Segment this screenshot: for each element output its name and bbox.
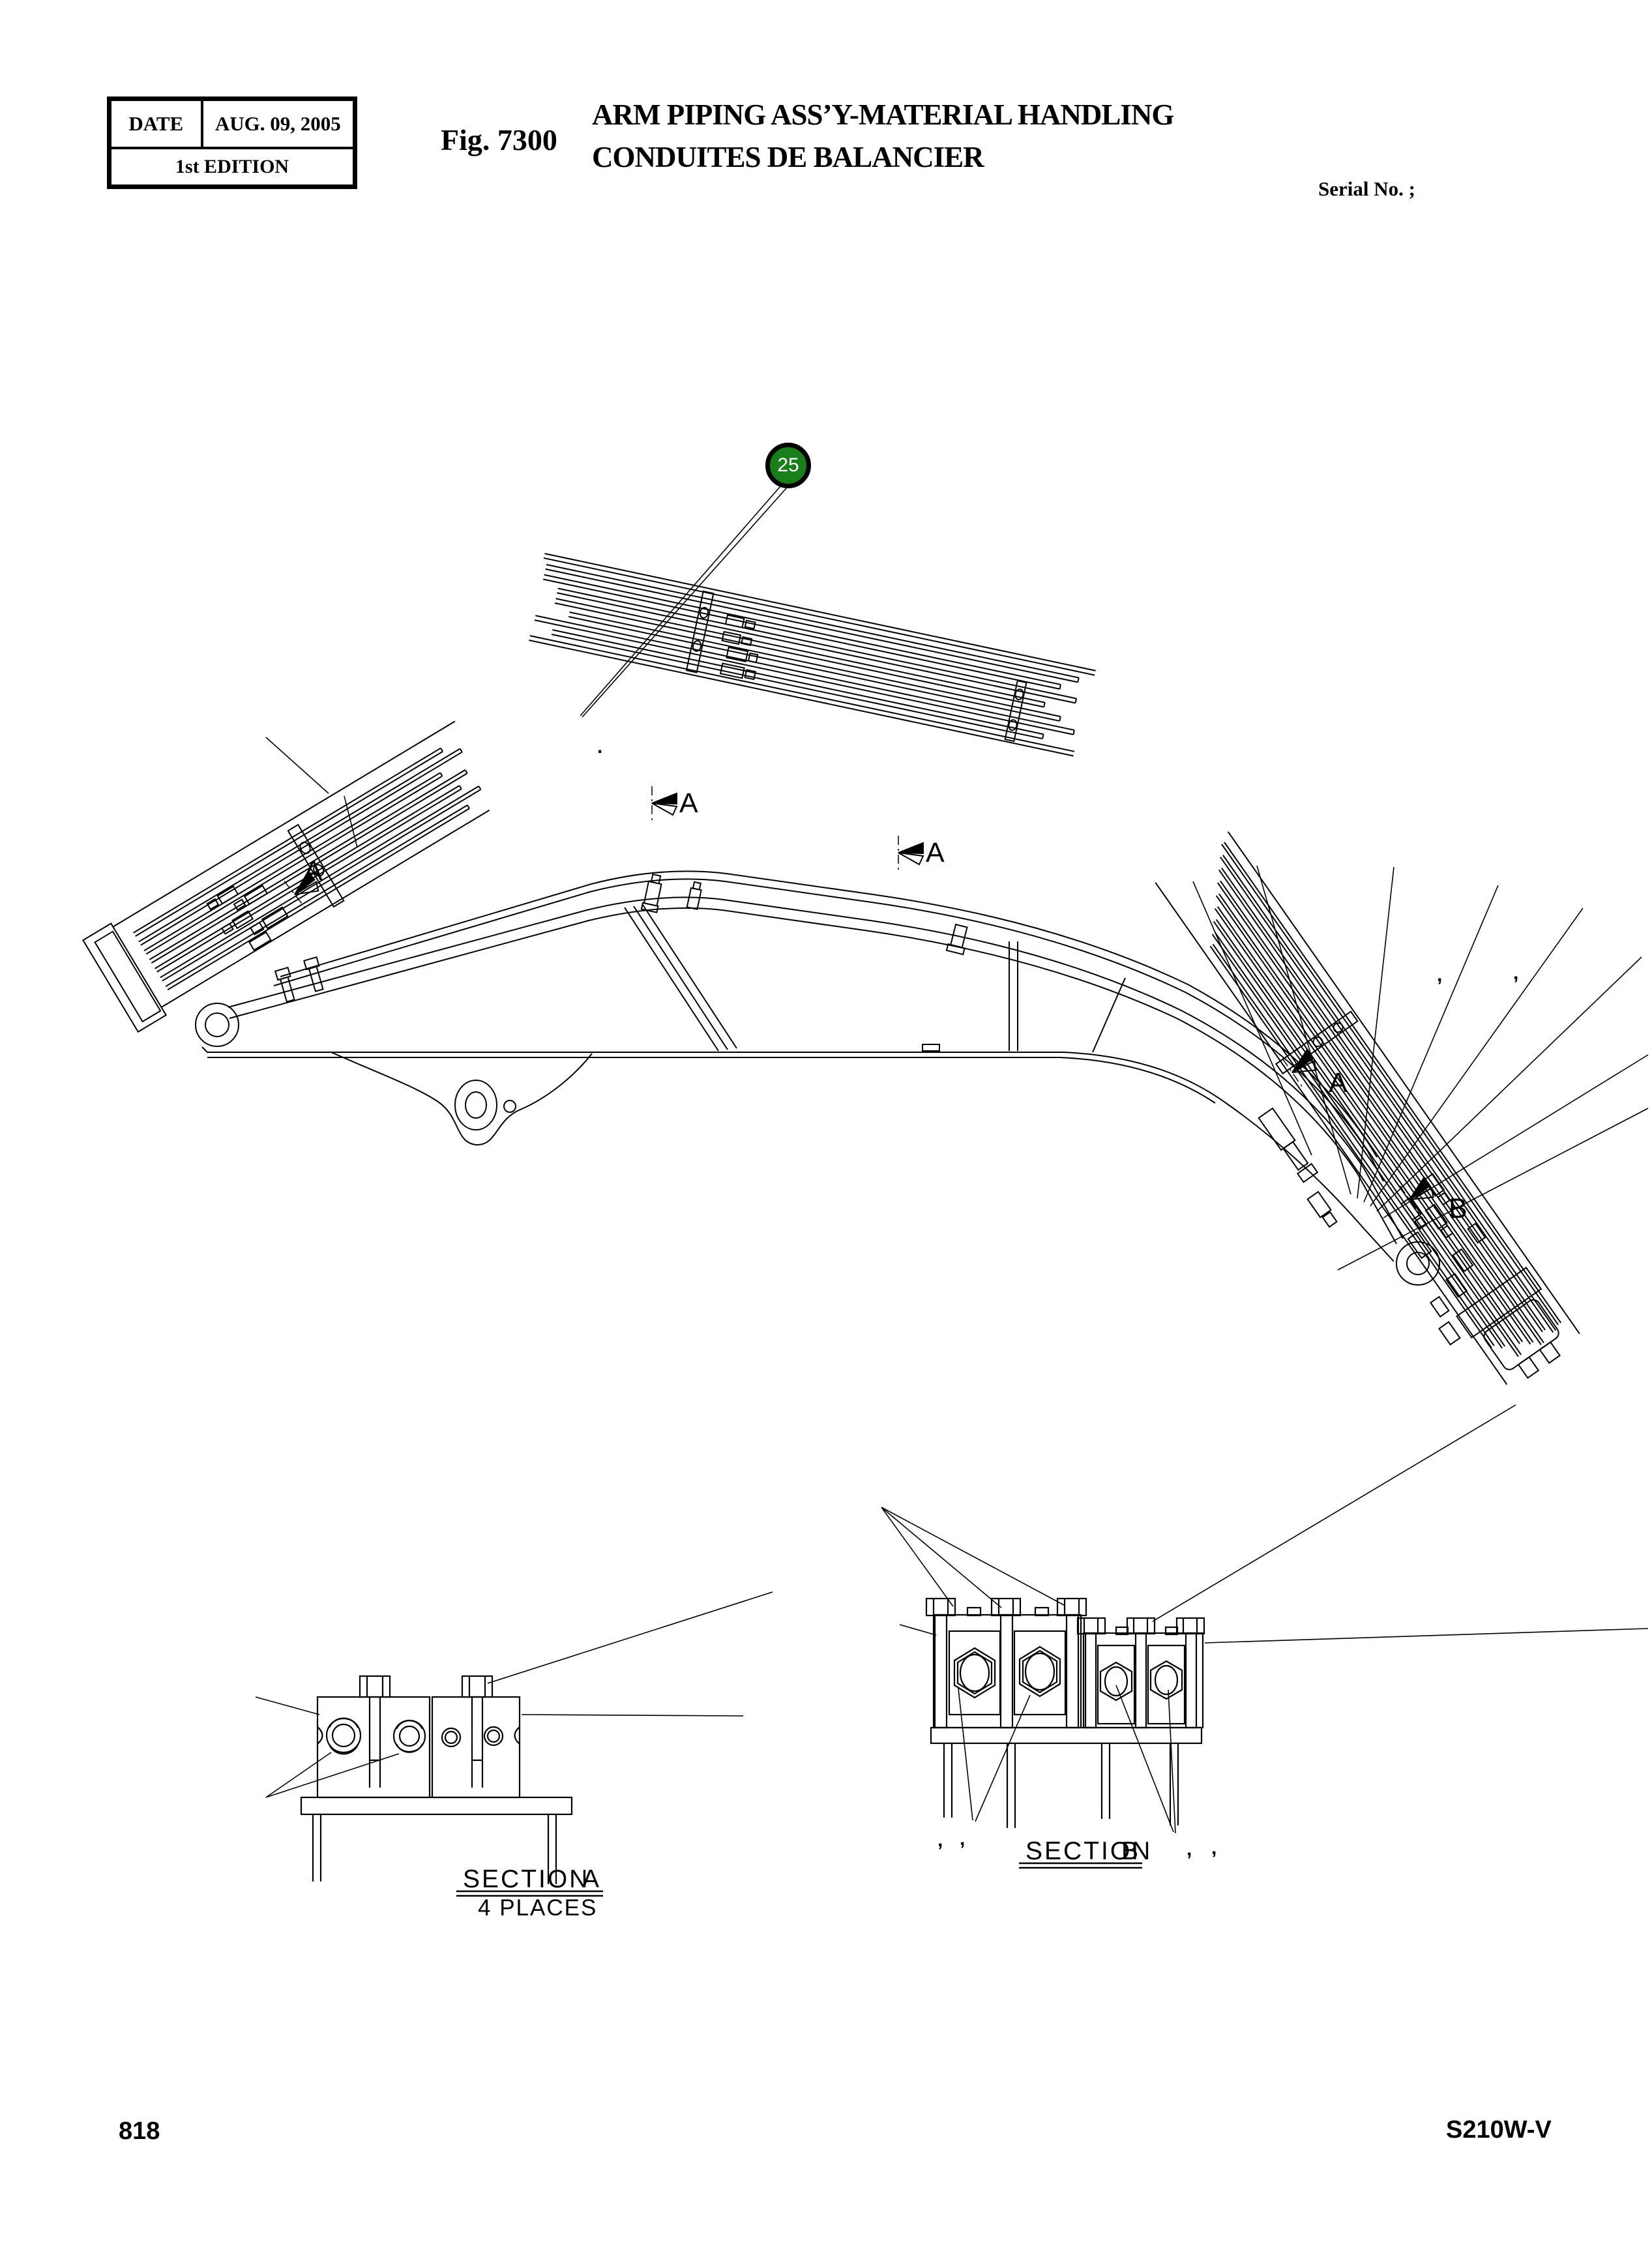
- pipe-bundle-top: [526, 553, 1095, 757]
- section-b-letter: B: [1121, 1837, 1140, 1865]
- stray-comma-6: ,: [1211, 1837, 1217, 1859]
- hex-nut: [1100, 1662, 1132, 1700]
- marker-letter-a4: A: [1329, 1067, 1348, 1099]
- hex-bolt: [360, 1676, 390, 1788]
- model-code: S210W-V: [1446, 2116, 1552, 2144]
- hex-nut: [1151, 1661, 1182, 1699]
- hex-bolt: [1078, 1618, 1204, 1634]
- section-a-letter: A: [582, 1865, 601, 1893]
- pipe-fittings: [207, 870, 294, 958]
- stray-comma-1: ,: [1437, 964, 1442, 986]
- catalog-page: DATE AUG. 09, 2005 1st EDITION Fig. 7300…: [0, 0, 1652, 2242]
- part-balloon-number: 25: [777, 454, 799, 477]
- part-balloon-25[interactable]: 25: [765, 443, 811, 488]
- marker-letter-a1: A: [679, 788, 698, 819]
- hex-nut: [1020, 1647, 1060, 1696]
- section-a-note: 4 PLACES: [478, 1895, 597, 1921]
- hex-bolt: [926, 1599, 1086, 1615]
- hex-bolt: [462, 1676, 492, 1788]
- pipe-bundle-right: [1136, 832, 1584, 1404]
- pipe-bundle-left: [83, 718, 508, 1032]
- view-marker-a2: [898, 836, 923, 874]
- arm-piping-diagram: A A A A B SECTION A 4 PLACES SECTION B .…: [0, 0, 1652, 2242]
- marker-letter-a3: A: [304, 855, 323, 887]
- view-marker-a1: [652, 786, 677, 824]
- section-a-view: [301, 1676, 572, 1884]
- marker-letter-b: B: [1449, 1193, 1468, 1224]
- section-a-title: SECTION: [463, 1865, 589, 1893]
- stray-comma-3: ,: [937, 1829, 943, 1851]
- marker-letter-a2: A: [926, 837, 945, 868]
- stray-dot: .: [597, 736, 602, 758]
- stray-comma-2: ,: [1513, 962, 1518, 984]
- hex-nut: [954, 1648, 995, 1698]
- arm-pipe-fittings: [275, 874, 1338, 1228]
- section-b-view: [926, 1599, 1204, 1828]
- stray-comma-4: ,: [960, 1828, 965, 1850]
- stray-comma-5: ,: [1187, 1838, 1192, 1860]
- page-number: 818: [119, 2117, 160, 2146]
